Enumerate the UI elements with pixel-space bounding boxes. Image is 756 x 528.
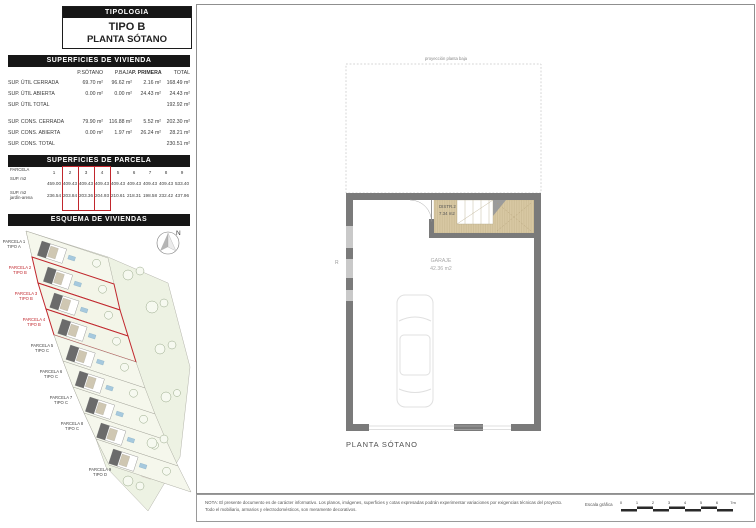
garaje-name: GARAJE	[431, 258, 452, 264]
nota-line1: NOTA: El presente documento es de caráct…	[205, 499, 575, 506]
door-swing	[410, 200, 432, 222]
vent-label: R	[335, 260, 339, 266]
plan-caption: PLANTA SÓTANO	[346, 440, 418, 449]
parcel-label: PARCELA 8TIPO C	[61, 421, 84, 431]
scale-tick-label: 4	[684, 500, 687, 505]
vivienda-cell: 0.00 m²	[74, 89, 103, 100]
parcela-row-label: PARCELA	[10, 168, 46, 173]
vivienda-row: SUP. CONS. ABIERTA0.00 m²1.97 m²26.24 m²…	[8, 128, 190, 139]
footer: NOTA: El presente documento es de caráct…	[196, 494, 755, 522]
vivienda-cell: 230.51 m²	[161, 139, 190, 150]
vivienda-section-title: SUPERFICIES DE VIVIENDA	[8, 55, 190, 67]
parcela-highlight-box	[62, 166, 79, 211]
vivienda-cell: 5.52 m²	[132, 117, 161, 128]
vivienda-cell	[132, 139, 161, 150]
parcela-sup: 459.00	[46, 177, 62, 190]
parcela-sup-jardin: 236.54	[46, 190, 62, 202]
vivienda-header-row: P.SÓTANO P.BAJA P. PRIMERA TOTAL	[8, 68, 190, 78]
parcela-number: 5	[110, 168, 126, 177]
projection-label: proyección planta baja	[425, 56, 468, 61]
vivienda-cell: 168.49 m²	[161, 78, 190, 89]
parcela-number: 9	[174, 168, 190, 177]
escala-label: Escala gráfica	[585, 502, 613, 507]
vivienda-cell: 24.43 m²	[161, 89, 190, 100]
distr-name: DISTR.2	[439, 204, 456, 209]
parcela-sup-jardin: 218.31	[126, 190, 142, 202]
vivienda-row: SUP. ÚTIL ABIERTA0.00 m²0.00 m²24.43 m²2…	[8, 89, 190, 100]
vivienda-header-cell: P.BAJA	[103, 68, 132, 78]
nota-text: NOTA: El presente documento es de caráct…	[205, 499, 575, 513]
vivienda-header-cell: P. PRIMERA	[132, 68, 161, 78]
parcela-sup: 409.43	[110, 177, 126, 190]
floor-plan: proyección planta baja DISTR.2 7.34 m2	[197, 5, 752, 491]
parcela-sup-jardin: 198.58	[142, 190, 158, 202]
vivienda-row: SUP. CONS. TOTAL230.51 m²	[8, 139, 190, 150]
vivienda-row-label: SUP. CONS. TOTAL	[8, 139, 74, 150]
vivienda-cell: 96.62 m²	[103, 78, 132, 89]
vivienda-cell	[74, 100, 103, 111]
parcel-label: PARCELA 1TIPO A	[3, 239, 26, 249]
vivienda-row-label: SUP. ÚTIL TOTAL	[8, 100, 74, 111]
vivienda-row: SUP. CONS. CERRADA79.90 m²116.88 m²5.52 …	[8, 117, 190, 128]
parcela-row-label: SUP. m2jardín-arena	[10, 190, 46, 201]
parcela-number: 6	[126, 168, 142, 177]
parcela-number: 1	[46, 168, 62, 177]
scale-tick-label: 5	[700, 500, 703, 505]
drawing-frame: proyección planta baja DISTR.2 7.34 m2	[196, 4, 755, 494]
parcel-label: PARCELA 6TIPO C	[40, 369, 63, 379]
vivienda-row-label: SUP. CONS. ABIERTA	[8, 128, 74, 139]
planta-label: PLANTA SÓTANO	[63, 34, 191, 48]
vivienda-cell: 202.30 m²	[161, 117, 190, 128]
garaje-area: 42.36 m2	[430, 266, 452, 272]
vivienda-cell: 26.24 m²	[132, 128, 161, 139]
vivienda-cell: 0.00 m²	[74, 128, 103, 139]
scale-segment	[717, 509, 733, 512]
parcela-highlight-box	[78, 166, 95, 211]
vivienda-header-cell: P.SÓTANO	[74, 68, 103, 78]
vivienda-header-cell	[8, 68, 74, 78]
wall-vent-segment: R	[335, 226, 353, 301]
parcel-tree	[105, 311, 113, 319]
scale-segment	[621, 509, 637, 512]
garage-door	[369, 426, 511, 430]
scale-tick-label: 2	[652, 500, 655, 505]
parcela-number: 7	[142, 168, 158, 177]
vivienda-cell	[132, 100, 161, 111]
distr-area: 7.34 m2	[439, 211, 455, 216]
parcela-sup-jardin: 232.42	[158, 190, 174, 202]
scale-segment	[669, 507, 685, 510]
site-plan: PARCELA 1TIPO APARCELA 2TIPO BPARCELA 3T…	[0, 227, 195, 528]
vivienda-cell: 0.00 m²	[103, 89, 132, 100]
vivienda-cell	[103, 100, 132, 111]
scale-tick-label: 0	[620, 500, 623, 505]
north-compass-icon: N	[157, 230, 181, 254]
north-label: N	[176, 230, 181, 237]
car-outline	[397, 295, 433, 407]
scale-tick-label: 7m	[730, 500, 736, 505]
parcel-tree	[99, 285, 107, 293]
esquema-section-title: ESQUEMA DE VIVIENDAS	[8, 214, 190, 226]
scale-segment	[701, 507, 717, 510]
scale-tick-label: 3	[668, 500, 671, 505]
vivienda-cell: 24.43 m²	[132, 89, 161, 100]
vivienda-row-label: SUP. ÚTIL ABIERTA	[8, 89, 74, 100]
vivienda-row-label: SUP. ÚTIL CERRADA	[8, 78, 74, 89]
parcel-tree	[163, 467, 171, 475]
parcel-label: PARCELA 4TIPO B	[23, 317, 46, 327]
parcela-sup-jardin: 210.61	[110, 190, 126, 202]
vivienda-cell	[103, 139, 132, 150]
scale-segment	[653, 509, 669, 512]
vivienda-cell: 79.90 m²	[74, 117, 103, 128]
vivienda-row: SUP. ÚTIL CERRADA69.70 m²96.62 m²2.16 m²…	[8, 78, 190, 89]
nota-line2: Todo el mobiliario, armarios y electrodo…	[205, 506, 575, 513]
parcel-label: PARCELA 7TIPO C	[50, 395, 73, 405]
projection-outline	[346, 64, 541, 193]
vivienda-header-cell: TOTAL	[161, 68, 190, 78]
parcela-sup: 533.40	[174, 177, 190, 190]
parcela-number: 8	[158, 168, 174, 177]
tipo-label: TIPO B	[63, 20, 191, 34]
scale-tick-label: 6	[716, 500, 719, 505]
vivienda-row: SUP. ÚTIL TOTAL192.92 m²	[8, 100, 190, 111]
vivienda-table: P.SÓTANO P.BAJA P. PRIMERA TOTAL SUP. ÚT…	[8, 68, 190, 150]
vivienda-cell: 2.16 m²	[132, 78, 161, 89]
parcela-sup: 409.43	[142, 177, 158, 190]
parcel-tree	[93, 259, 101, 267]
vivienda-cell: 1.97 m²	[103, 128, 132, 139]
parcel-tree	[130, 389, 138, 397]
title-block: TIPOLOGIA TIPO B PLANTA SÓTANO	[62, 6, 192, 49]
parcela-row-label: SUP. m2	[10, 177, 46, 182]
parcel-tree	[140, 415, 148, 423]
vivienda-cell	[74, 139, 103, 150]
parcela-sup-jardin: 437.96	[174, 190, 190, 202]
parcela-sup: 409.43	[158, 177, 174, 190]
parcel-label: PARCELA 2TIPO B	[9, 265, 32, 275]
scale-segment	[637, 507, 653, 510]
plan-sheet: TIPOLOGIA TIPO B PLANTA SÓTANO SUPERFICI…	[0, 0, 756, 528]
vivienda-cell: 28.21 m²	[161, 128, 190, 139]
parcel-tree	[113, 337, 121, 345]
tipologia-bar: TIPOLOGIA	[63, 7, 191, 18]
parcel-label: PARCELA 3TIPO B	[15, 291, 38, 301]
parcela-highlight-box	[94, 166, 111, 211]
vivienda-cell: 192.92 m²	[161, 100, 190, 111]
parcel-tree	[121, 363, 129, 371]
room-distr2: DISTR.2 7.34 m2	[434, 200, 534, 233]
scale-segment	[685, 509, 701, 512]
vivienda-row-label: SUP. CONS. CERRADA	[8, 117, 74, 128]
vivienda-cell: 116.88 m²	[103, 117, 132, 128]
parcel-label: PARCELA 5TIPO C	[31, 343, 54, 353]
scale-tick-label: 1	[636, 500, 639, 505]
vivienda-cell: 69.70 m²	[74, 78, 103, 89]
scale-bar: 01234567m	[617, 498, 747, 518]
parcel-label: PARCELA 9TIPO D	[89, 467, 112, 477]
parcela-sup: 409.43	[126, 177, 142, 190]
